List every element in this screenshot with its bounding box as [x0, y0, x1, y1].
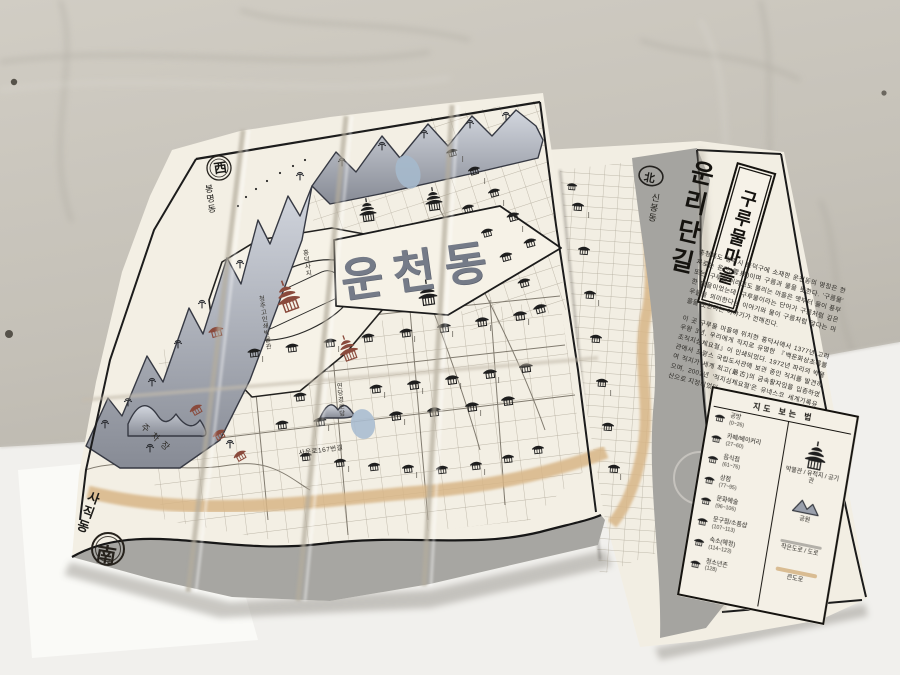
compass-south-seal: 南 — [91, 537, 122, 570]
house-icon — [695, 515, 710, 528]
house-icon — [698, 494, 713, 507]
compass-north-seal: 北 — [638, 168, 660, 187]
pagoda-icon — [798, 437, 832, 473]
house-icon — [709, 432, 724, 445]
legend-symbol-label: 박물관 / 유적지 / 공기관 — [782, 466, 841, 492]
house-icon — [712, 411, 727, 424]
photo-scene: 운천동 西 봉명동 北 신봉동 사직동 南 무심천 東 흥덕사지 청주고인쇄박물… — [0, 0, 900, 675]
compass-west-seal: 西 — [208, 156, 232, 178]
house-icon — [691, 536, 706, 549]
house-icon — [688, 556, 703, 569]
house-icon — [702, 473, 717, 486]
house-icon — [705, 452, 720, 465]
